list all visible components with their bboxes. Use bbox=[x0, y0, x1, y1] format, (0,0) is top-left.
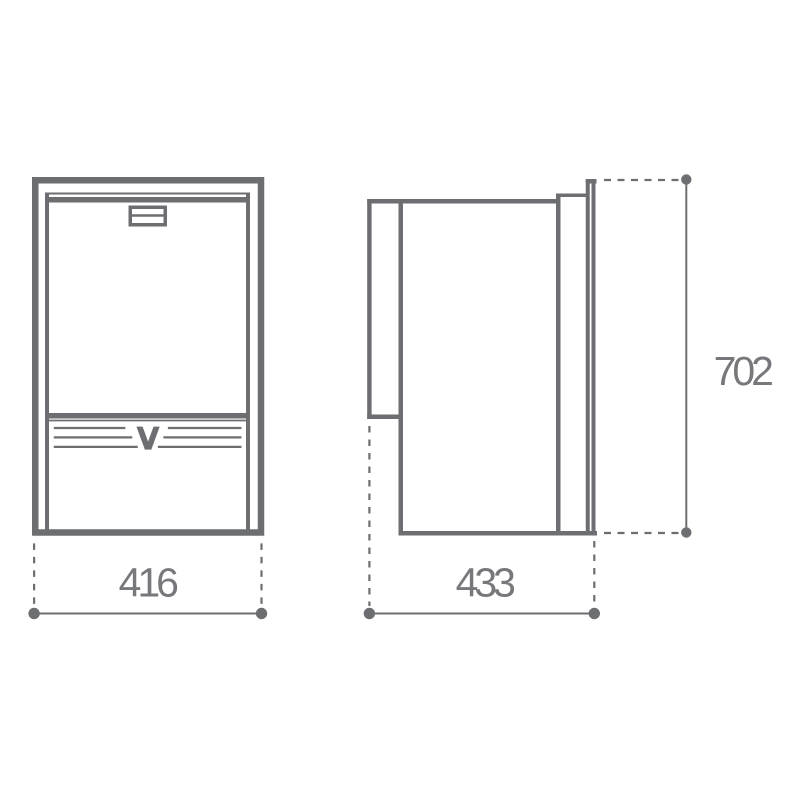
svg-text:433: 433 bbox=[456, 560, 515, 606]
svg-text:702: 702 bbox=[714, 348, 773, 394]
svg-text:416: 416 bbox=[119, 560, 178, 606]
